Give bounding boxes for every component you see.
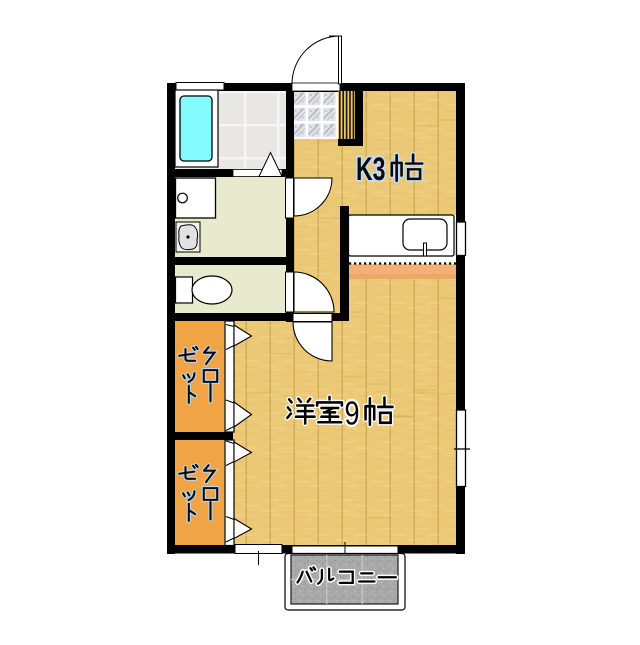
svg-text:K3: K3 <box>356 151 385 187</box>
svg-text:9: 9 <box>345 396 360 432</box>
